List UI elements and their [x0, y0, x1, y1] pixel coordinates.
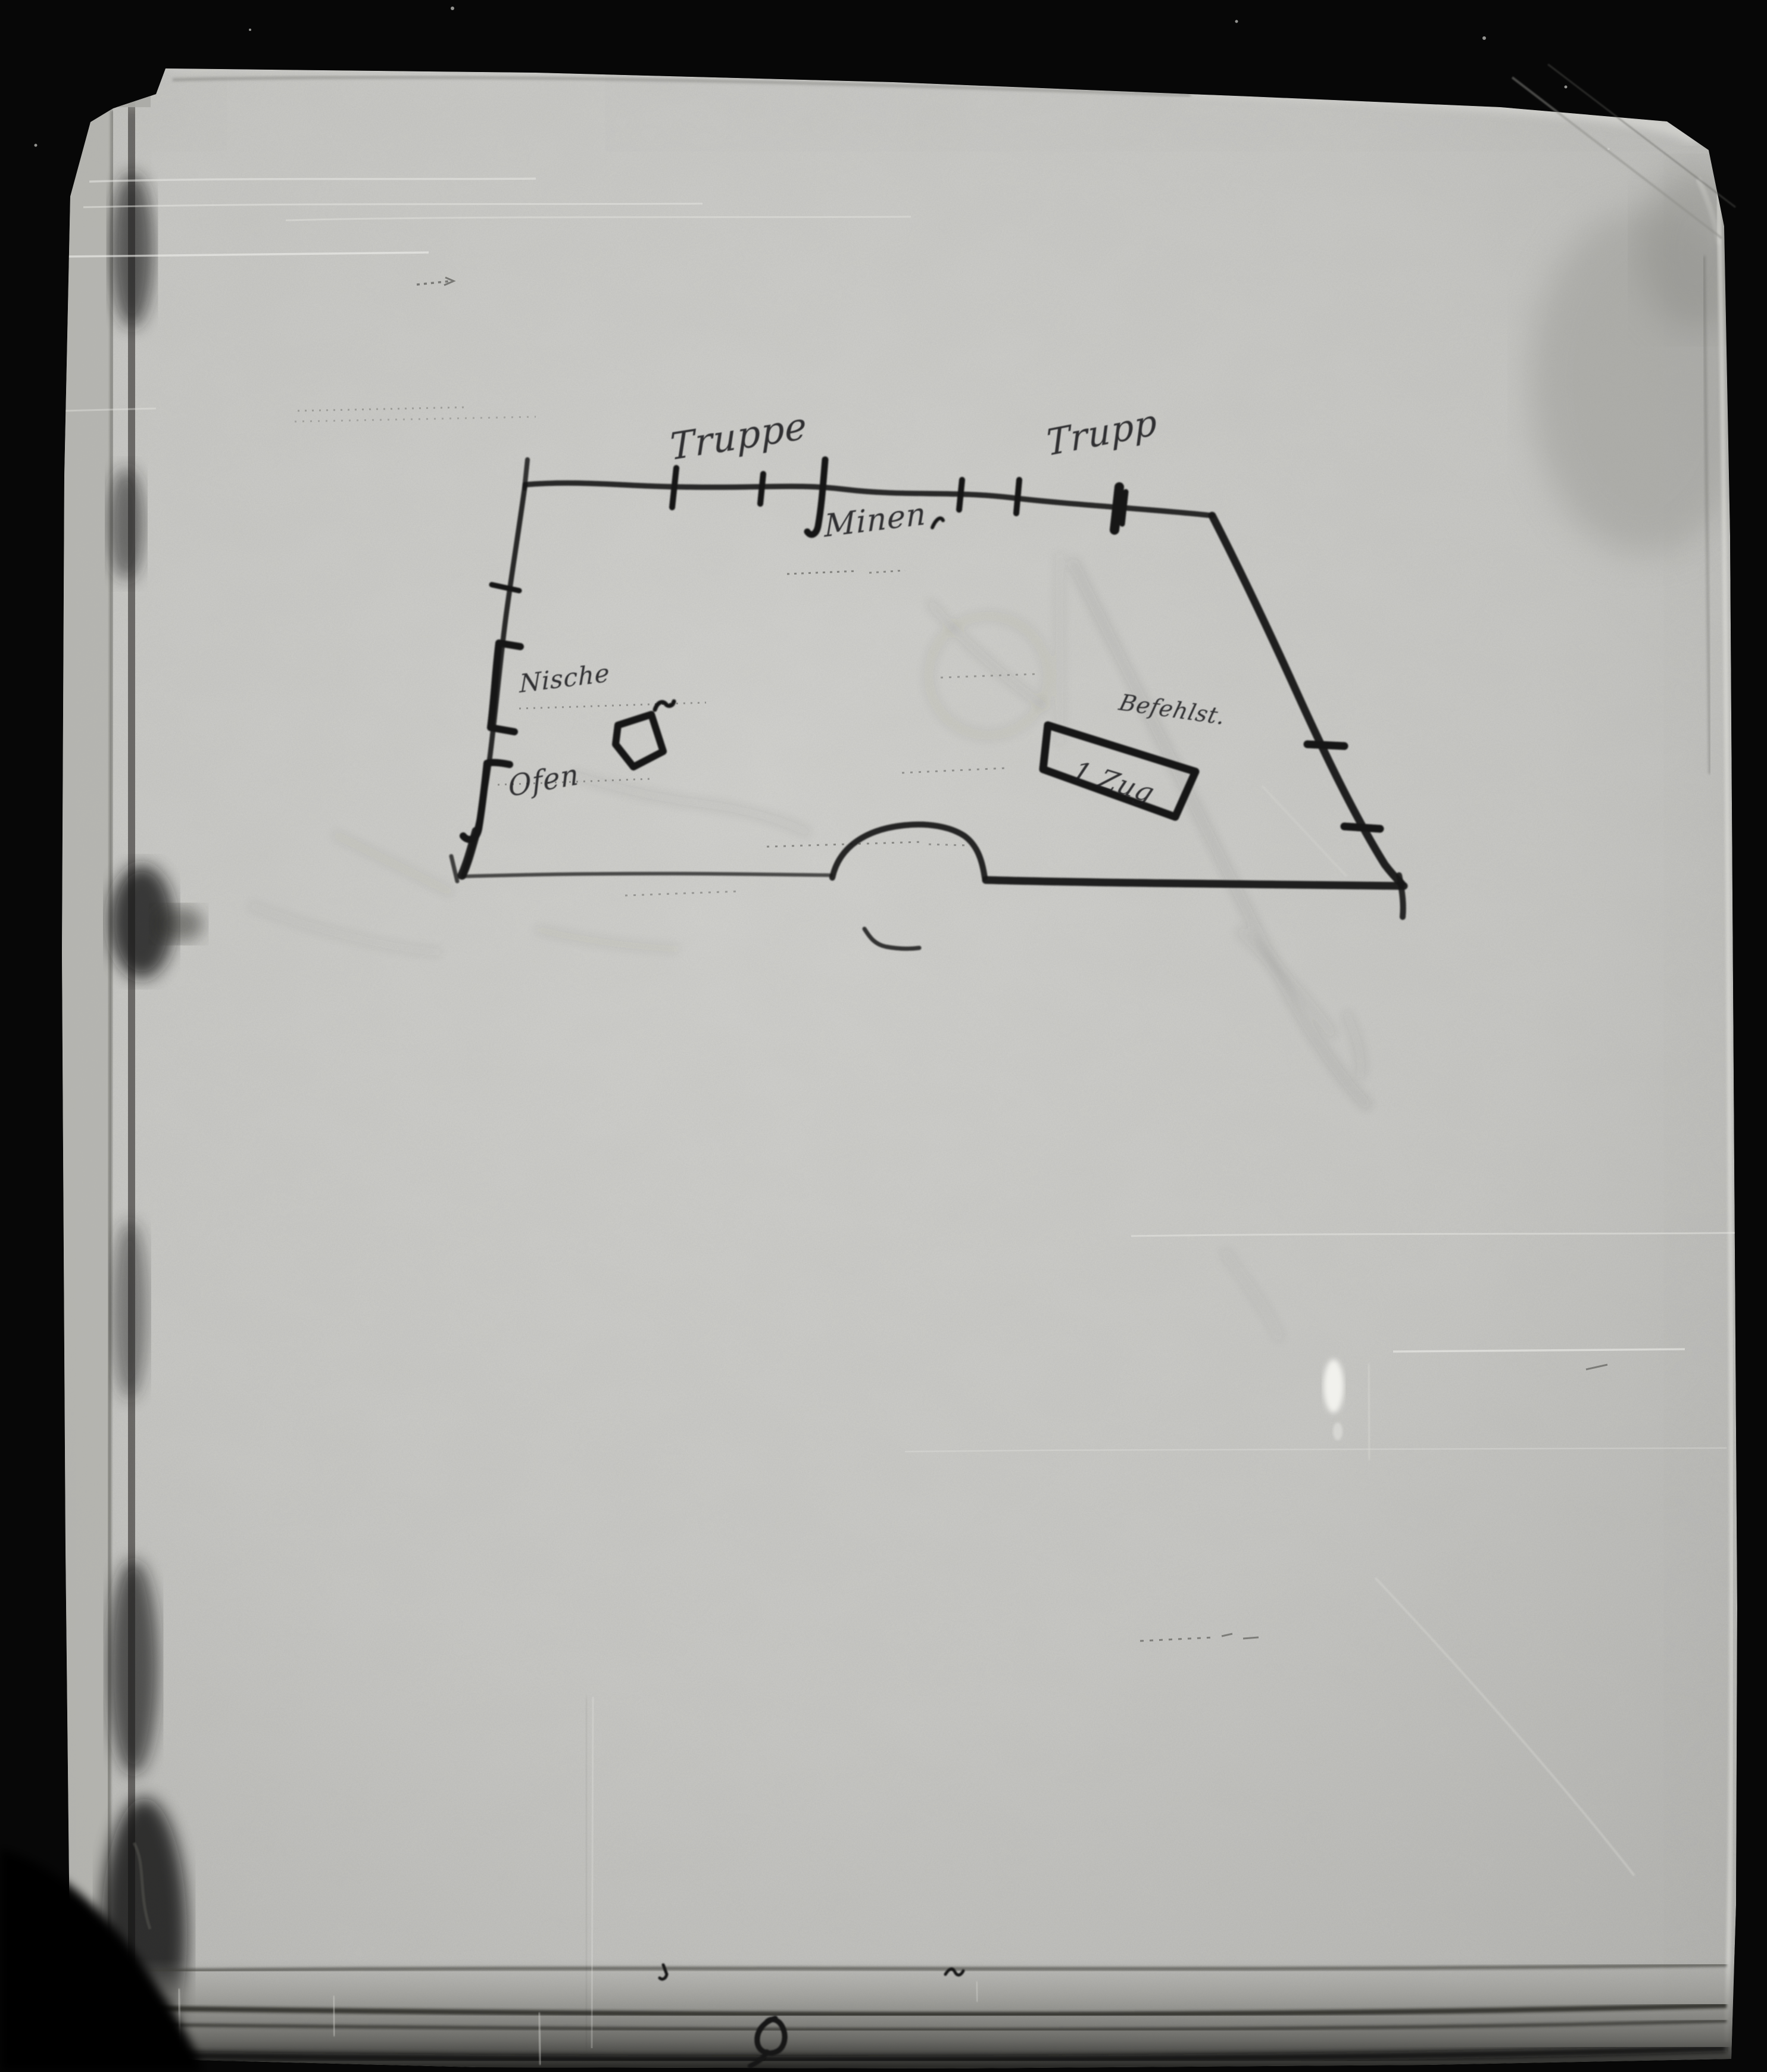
document-page [0, 0, 1767, 2072]
tick-mark [760, 474, 763, 504]
dust [249, 29, 251, 31]
gutter-dark-blob [108, 1560, 158, 1774]
dust [35, 144, 38, 147]
fold-crease-highlight [592, 1697, 593, 2048]
gutter-dark-blob [112, 1221, 148, 1399]
dust [1482, 36, 1486, 40]
scan-rendering [0, 0, 1767, 2072]
stack-scratch [976, 1981, 978, 2002]
gutter-dark-notch [154, 906, 204, 942]
ghost-stroke [1059, 554, 1060, 744]
under-page-edge-strip [61, 106, 111, 2047]
gutter-dark-blob [108, 467, 144, 581]
stack-scratch [333, 1996, 335, 2036]
right-wall-tick [1307, 744, 1344, 746]
tick-mark [1016, 480, 1019, 513]
archival-photo-scan: Truppe Trupp Minen Nische Ofen Befehlst.… [0, 0, 1767, 2072]
tick-mark-thick [1114, 487, 1119, 530]
dust [1235, 20, 1238, 23]
white-blob-small [1333, 1422, 1343, 1440]
dust [451, 7, 454, 10]
paper-grain-light [0, 0, 1767, 2072]
tick-mark [672, 468, 676, 507]
tick-mark [1122, 492, 1126, 524]
white-blob [1323, 1359, 1344, 1413]
fold-crease [586, 1697, 587, 2048]
dust [1565, 86, 1568, 89]
right-wall-tick [1344, 826, 1380, 829]
dust [1607, 148, 1610, 150]
tick-mark [959, 480, 962, 510]
light-streak [1368, 1363, 1370, 1460]
gutter-dark-blob [111, 173, 154, 327]
